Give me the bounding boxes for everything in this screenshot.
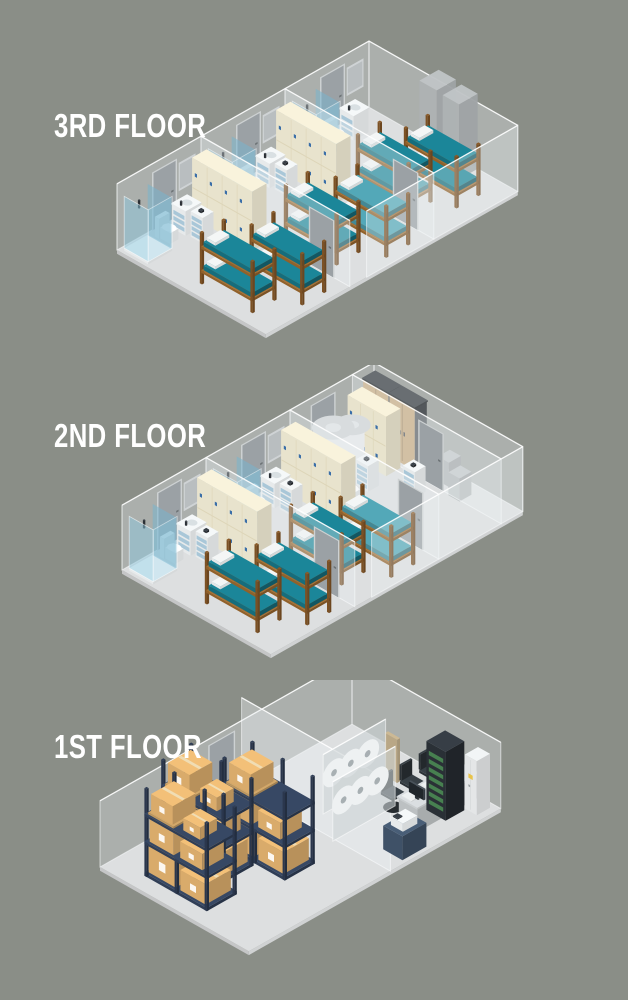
server-rack-part <box>446 741 465 821</box>
sink-vanity-part <box>185 521 186 526</box>
floor-3-scene <box>117 41 518 338</box>
floor-3-label: 3RD FLOOR <box>54 109 206 142</box>
porthole-partition-part <box>370 769 384 793</box>
bunk-bed-part <box>250 261 252 314</box>
bunk-bed-part <box>363 521 365 574</box>
electrical-cabinet <box>465 747 490 815</box>
sink-vanity-part <box>265 153 266 158</box>
floor-2-illustration <box>0 365 628 680</box>
pallet-rack-part <box>249 778 251 867</box>
pallet-rack-part <box>147 788 149 877</box>
bunk-bed-part <box>302 253 304 306</box>
sink-vanity-part <box>270 473 271 478</box>
bunk-bed-part <box>322 241 324 294</box>
bunk-bed-part <box>253 261 255 314</box>
bunk-bed-part <box>277 568 279 621</box>
bunk-bed-part <box>324 241 326 294</box>
bunk-bed-part <box>329 561 331 614</box>
sink-vanity-part <box>349 106 350 111</box>
server-rack <box>426 730 464 820</box>
sink-vanity-part <box>348 106 349 111</box>
computer-monitor-part <box>424 789 426 801</box>
bunk-bed-part <box>279 568 281 621</box>
sink-vanity-part <box>186 521 187 526</box>
pallet-rack-part <box>311 776 313 865</box>
sink-vanity-part <box>269 473 270 478</box>
pallet-rack-part <box>207 822 209 911</box>
bunk-bed-part <box>305 573 307 626</box>
office-chair-part <box>419 754 421 771</box>
back-wall-part <box>122 505 123 570</box>
electrical-cabinet-part <box>477 754 490 816</box>
floor-2-label: 2ND FLOOR <box>54 419 206 452</box>
bunk-bed-part <box>274 248 276 301</box>
building-floors-infographic: 3RD FLOOR 2ND FLOOR 1ST FLOOR <box>0 0 628 1000</box>
office-chair-part <box>400 764 402 781</box>
bunk-bed-part <box>205 552 207 605</box>
floor-2-scene <box>122 365 523 658</box>
bunk-bed-part <box>307 573 309 626</box>
pallet-rack-part <box>144 788 146 877</box>
bunk-bed-part <box>255 581 257 634</box>
bunk-bed-part <box>358 201 360 254</box>
pallet-rack-part <box>285 792 287 881</box>
pallet-rack-part <box>235 806 237 895</box>
floor-3-illustration <box>0 0 628 365</box>
bunk-bed-part <box>200 232 202 285</box>
pallet-rack-part <box>233 806 235 895</box>
pallet-rack-part <box>283 792 285 881</box>
pallet-rack-part <box>313 776 315 865</box>
bunk-bed-part <box>272 248 274 301</box>
porthole-partition-part <box>353 778 367 802</box>
pallet-rack-part <box>205 822 207 911</box>
pallet-rack-part <box>251 778 253 867</box>
floor-1-label: 1ST FLOOR <box>54 730 202 763</box>
floor-1-scene <box>100 680 501 955</box>
sink-vanity-part <box>181 201 182 206</box>
bunk-bed-part <box>300 253 302 306</box>
bunk-bed-part <box>207 552 209 605</box>
bunk-bed-part <box>327 561 329 614</box>
sink-vanity-part <box>180 201 181 206</box>
bunk-bed-part <box>258 581 260 634</box>
bunk-bed-part <box>361 521 363 574</box>
bunk-bed-part <box>202 232 204 285</box>
back-wall-part <box>117 184 118 251</box>
porthole-partition-part <box>336 788 350 812</box>
bunk-bed-part <box>356 201 358 254</box>
sink-vanity-part <box>264 153 265 158</box>
